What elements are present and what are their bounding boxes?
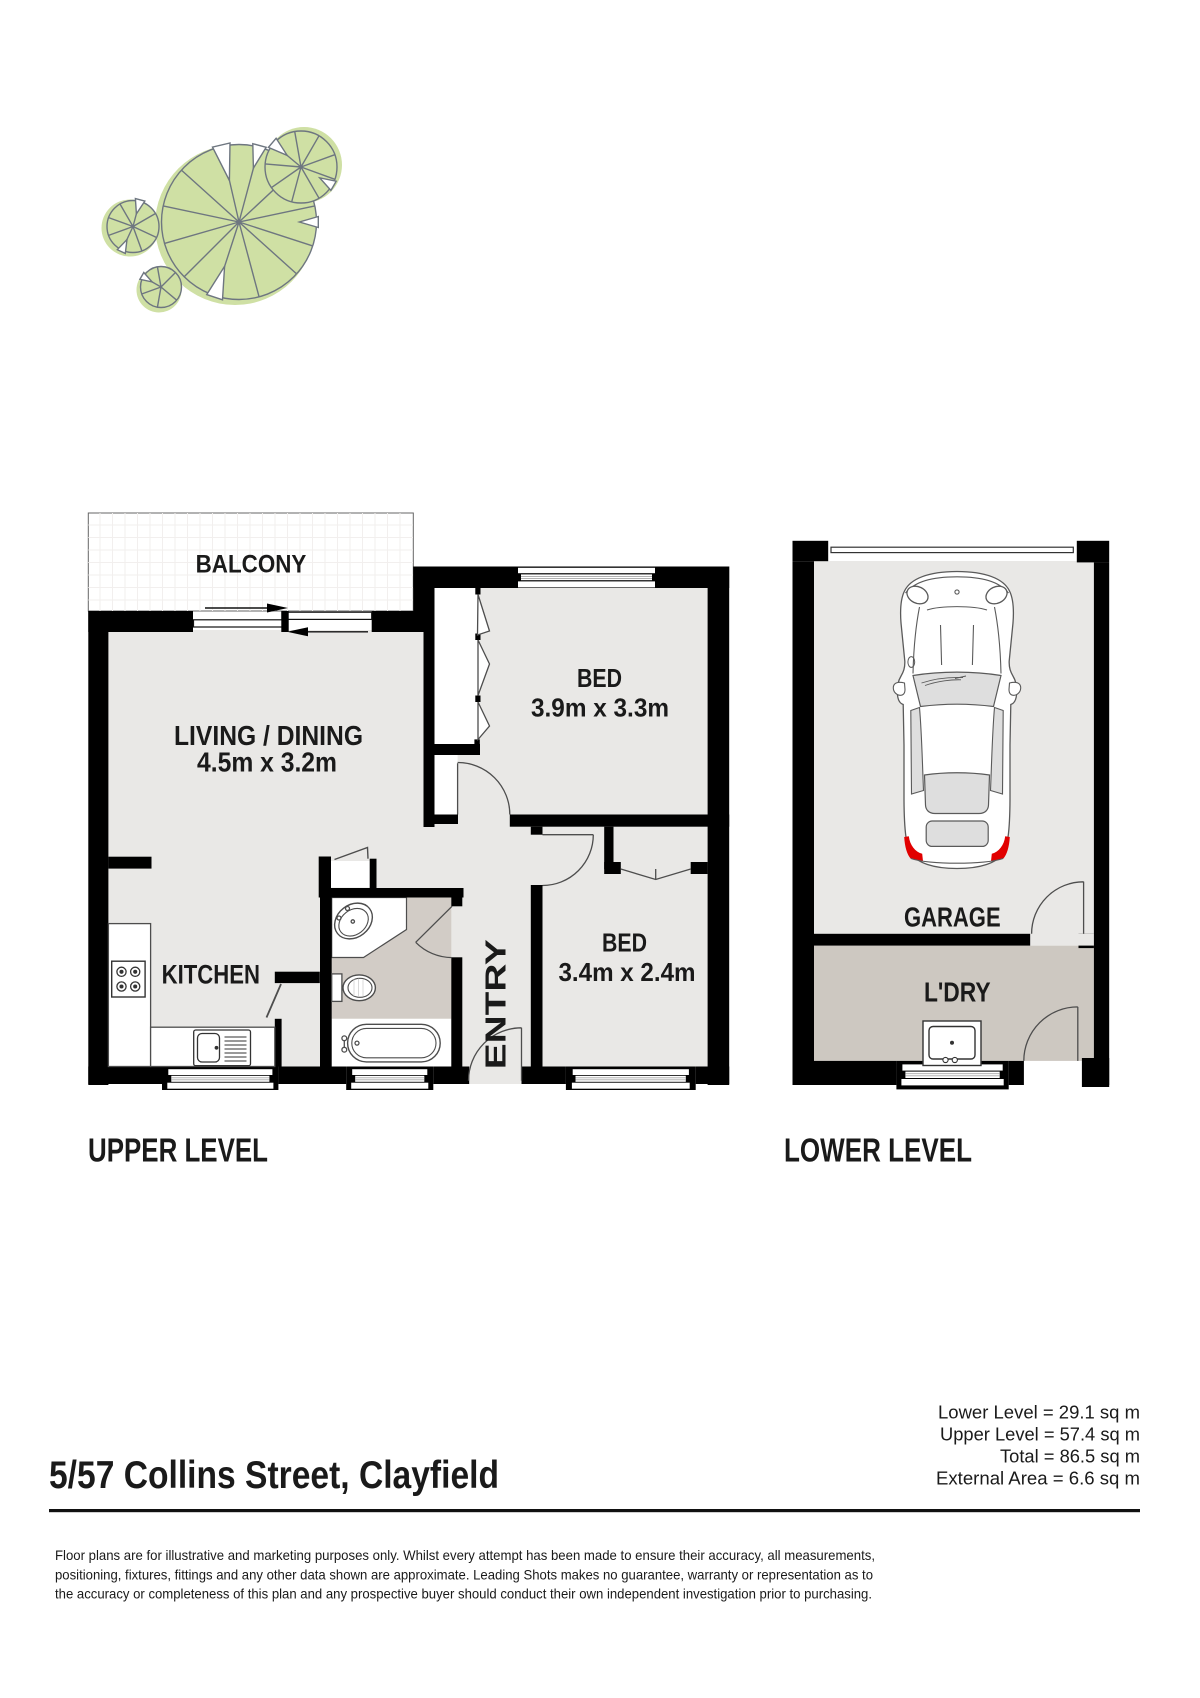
svg-text:LOWER LEVEL: LOWER LEVEL bbox=[784, 1132, 972, 1169]
svg-text:Total = 86.5 sq m: Total = 86.5 sq m bbox=[1000, 1446, 1140, 1467]
svg-text:the accuracy or completeness o: the accuracy or completeness of this pla… bbox=[55, 1587, 872, 1602]
svg-text:positioning, fixtures, fitting: positioning, fixtures, fittings and any … bbox=[55, 1567, 873, 1582]
svg-text:BED: BED bbox=[602, 928, 647, 958]
svg-text:Upper Level = 57.4 sq m: Upper Level = 57.4 sq m bbox=[940, 1424, 1140, 1445]
svg-text:BED: BED bbox=[577, 663, 622, 693]
svg-text:ENTRY: ENTRY bbox=[481, 939, 513, 1069]
svg-text:BALCONY: BALCONY bbox=[196, 551, 307, 579]
svg-text:3.9m x 3.3m: 3.9m x 3.3m bbox=[531, 693, 669, 723]
svg-text:L'DRY: L'DRY bbox=[924, 977, 991, 1008]
svg-text:KITCHEN: KITCHEN bbox=[162, 959, 260, 989]
svg-text:4.5m x 3.2m: 4.5m x 3.2m bbox=[197, 747, 337, 778]
svg-text:GARAGE: GARAGE bbox=[904, 901, 1001, 932]
svg-text:Lower Level = 29.1 sq m: Lower Level = 29.1 sq m bbox=[938, 1402, 1140, 1423]
svg-text:UPPER LEVEL: UPPER LEVEL bbox=[88, 1132, 268, 1169]
svg-text:3.4m x 2.4m: 3.4m x 2.4m bbox=[559, 957, 696, 987]
svg-text:5/57 Collins Street, Clayfield: 5/57 Collins Street, Clayfield bbox=[49, 1454, 499, 1497]
svg-text:Floor plans are for illustrati: Floor plans are for illustrative and mar… bbox=[55, 1548, 875, 1563]
svg-text:External Area = 6.6 sq m: External Area = 6.6 sq m bbox=[936, 1468, 1140, 1489]
